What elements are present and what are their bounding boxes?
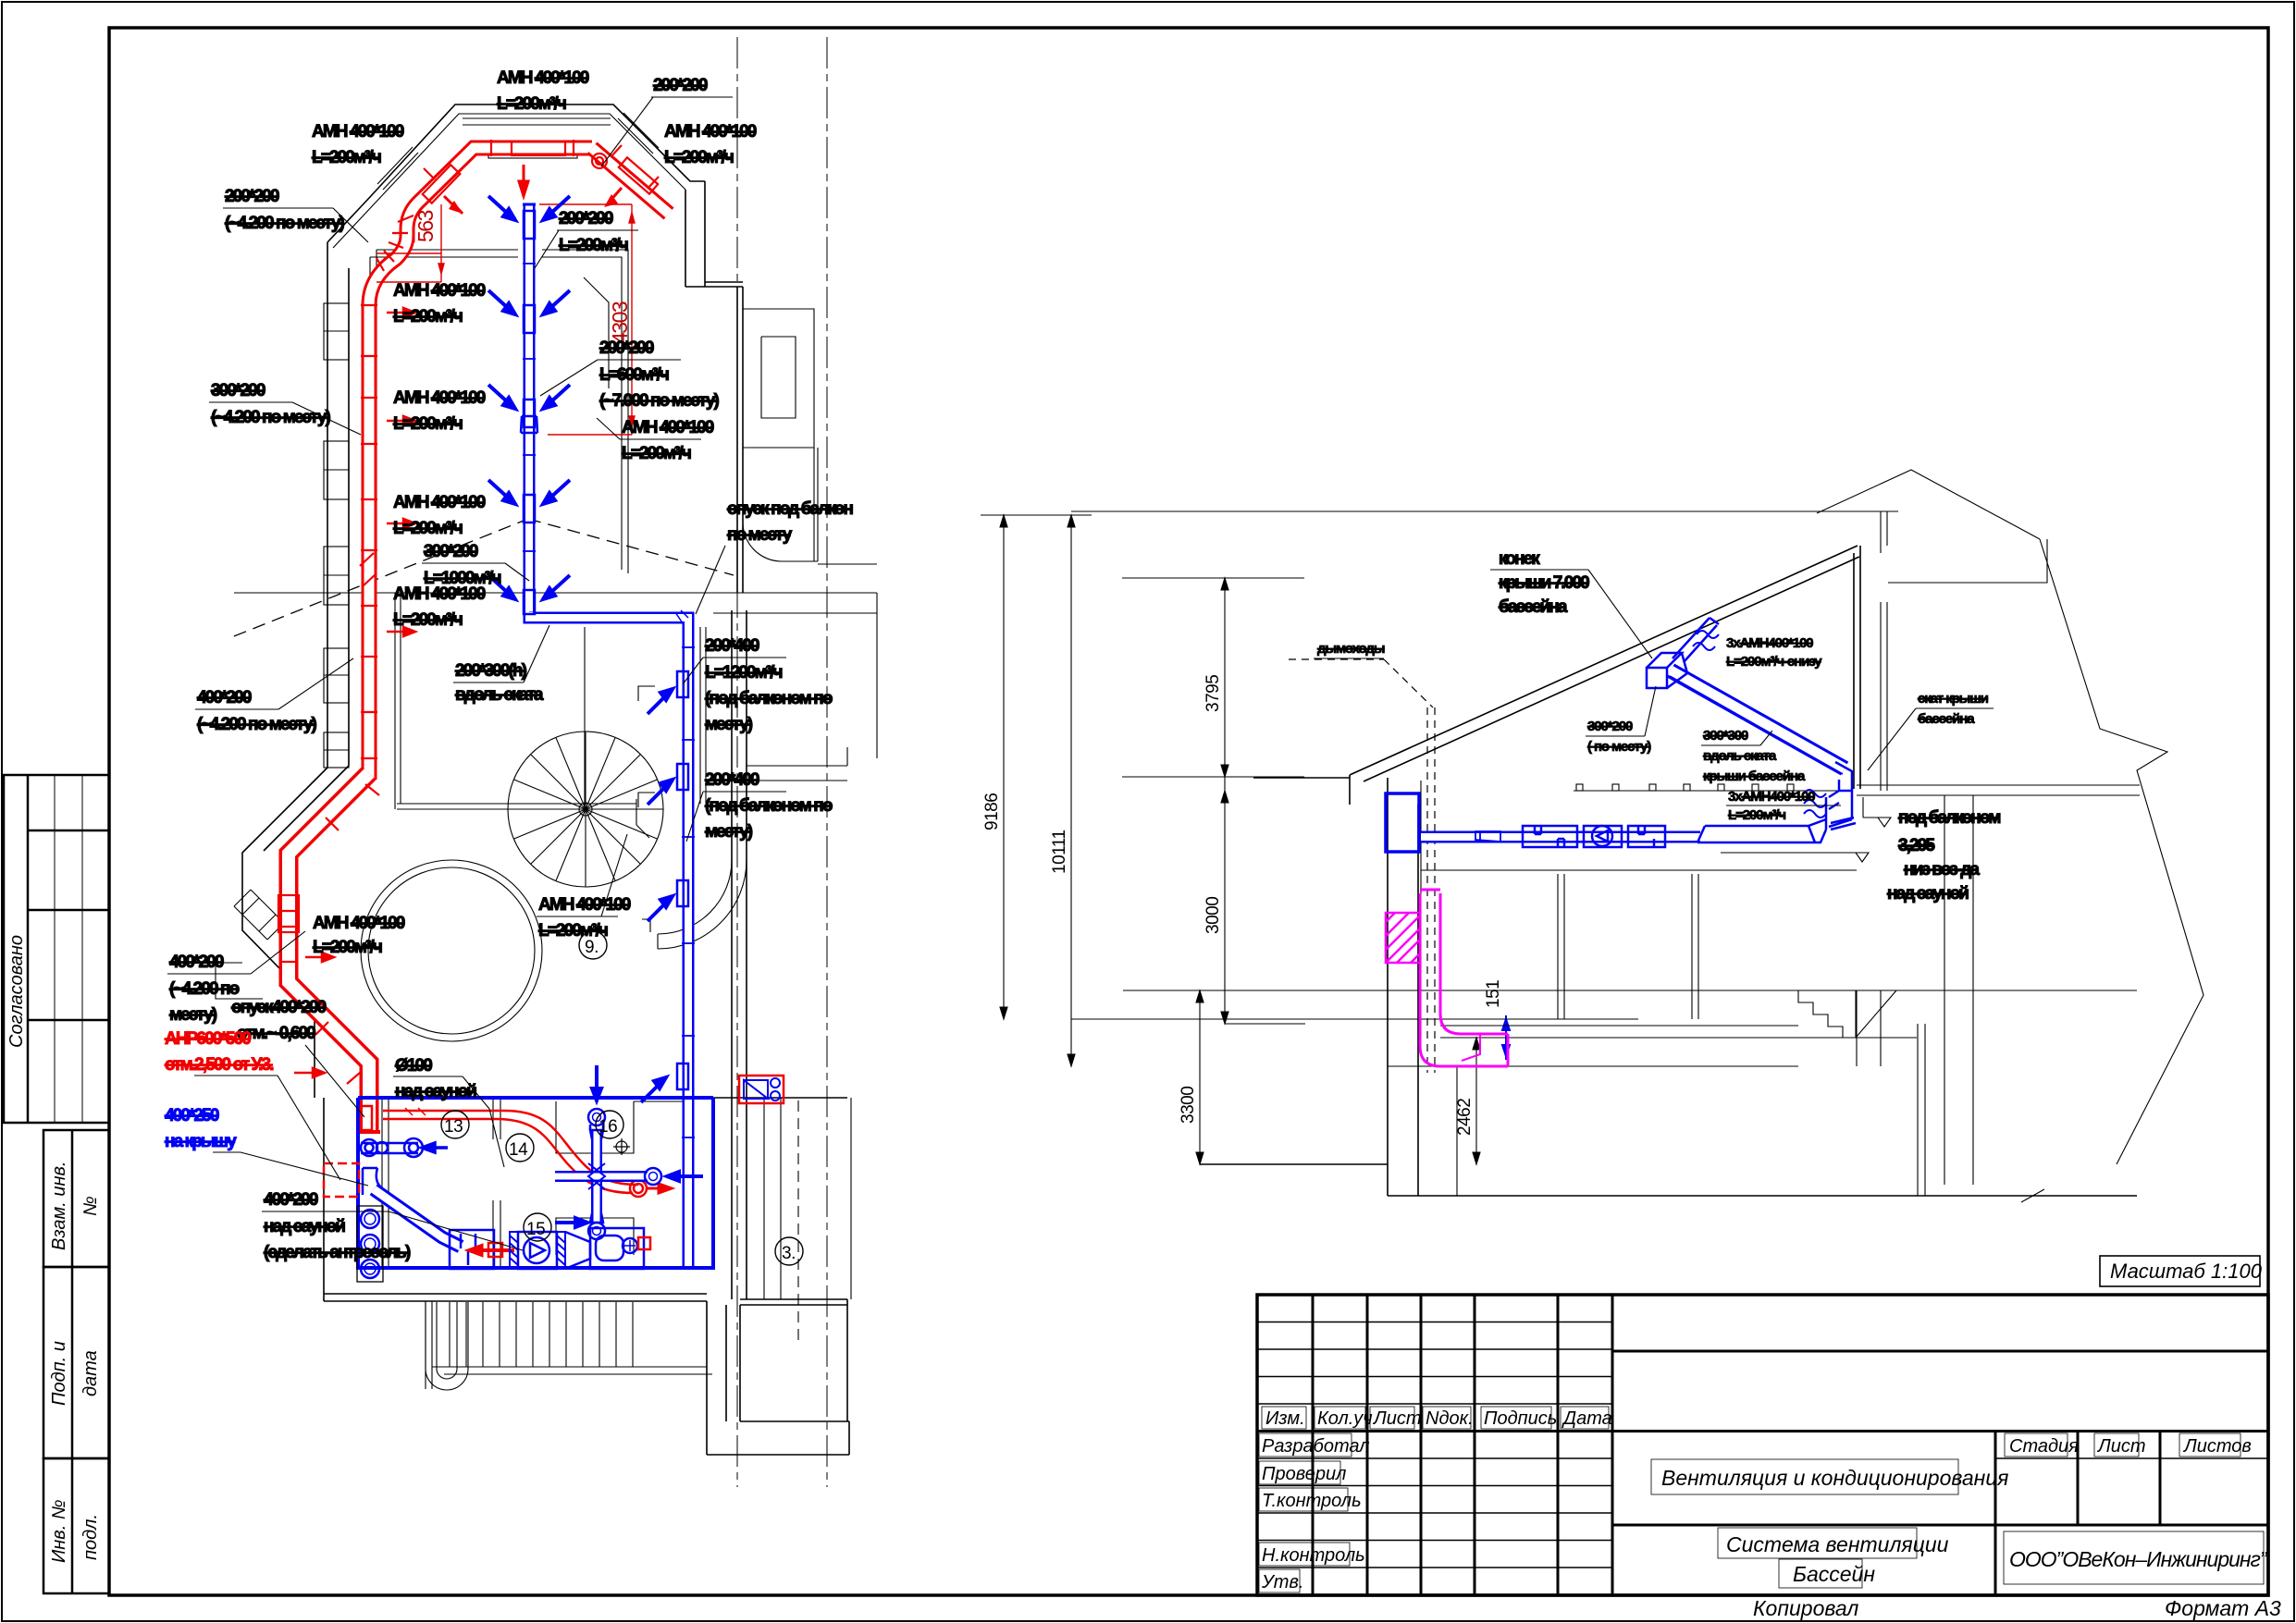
- svg-text:200*400: 200*400: [705, 636, 759, 656]
- svg-text:дата: дата: [80, 1350, 101, 1396]
- svg-text:под балконом: под балконом: [1898, 808, 2000, 828]
- svg-text:конек: конек: [1499, 549, 1540, 569]
- svg-text:Вентиляция и кондиционирования: Вентиляция и кондиционирования: [1661, 1466, 2008, 1490]
- svg-text:( по месту): ( по месту): [1587, 739, 1651, 755]
- svg-text:L=200м³/ч: L=200м³/ч: [312, 148, 381, 167]
- svg-text:(~4.200 по месту): (~4.200 по месту): [225, 214, 344, 233]
- svg-text:400*200: 400*200: [197, 688, 252, 707]
- svg-text:АМН 400*100: АМН 400*100: [393, 388, 486, 408]
- svg-text:АНР600*500: АНР600*500: [165, 1029, 251, 1049]
- svg-text:400*250: 400*250: [165, 1106, 219, 1125]
- svg-text:месту): месту): [705, 715, 753, 734]
- svg-text:ООО”ОВеКон–Инжиниринг”: ООО”ОВеКон–Инжиниринг”: [2009, 1547, 2268, 1571]
- svg-text:дымоходы: дымоходы: [1317, 641, 1385, 657]
- svg-text:Взам. инв.: Взам. инв.: [49, 1162, 69, 1250]
- svg-text:L=200м³/ч: L=200м³/ч: [393, 307, 463, 326]
- svg-text:L=200м³/ч: L=200м³/ч: [559, 236, 628, 255]
- svg-text:АМН 400*100: АМН 400*100: [313, 914, 405, 933]
- svg-text:L=600м³/ч: L=600м³/ч: [599, 365, 669, 385]
- svg-text:16: 16: [599, 1117, 617, 1137]
- svg-text:месту): месту): [705, 822, 753, 842]
- svg-text:9186: 9186: [982, 793, 1002, 830]
- svg-text:вдоль ската: вдоль ската: [1703, 748, 1777, 764]
- svg-text:Лист: Лист: [2096, 1436, 2146, 1457]
- svg-text:3,295: 3,295: [1898, 836, 1935, 855]
- svg-text:над сауной: над сауной: [1887, 884, 1969, 904]
- svg-text:L=200м³/ч: L=200м³/ч: [393, 414, 463, 434]
- svg-text:L=200м³/ч: L=200м³/ч: [664, 148, 734, 167]
- svg-text:Формат А3: Формат А3: [2165, 1596, 2281, 1620]
- svg-text:Nдок.: Nдок.: [1426, 1408, 1474, 1429]
- svg-text:15: 15: [526, 1220, 545, 1239]
- svg-text:крыши 7.000: крыши 7.000: [1499, 573, 1589, 593]
- svg-text:Ø100: Ø100: [395, 1056, 432, 1076]
- svg-text:Проверил: Проверил: [1262, 1464, 1346, 1484]
- svg-text:563: 563: [414, 210, 438, 242]
- svg-text:L=200м³/ч: L=200м³/ч: [497, 94, 566, 114]
- svg-text:3795: 3795: [1204, 675, 1223, 712]
- svg-text:200*200: 200*200: [653, 76, 708, 95]
- svg-text:L=200м³/ч: L=200м³/ч: [393, 610, 463, 630]
- svg-text:Лист: Лист: [1372, 1408, 1422, 1429]
- svg-text:400*200: 400*200: [264, 1190, 318, 1210]
- svg-text:Дата: Дата: [1562, 1408, 1612, 1429]
- svg-text:по месту: по месту: [727, 525, 793, 545]
- svg-text:Листов: Листов: [2182, 1436, 2252, 1457]
- svg-text:L=200м³/ч: L=200м³/ч: [393, 519, 463, 538]
- svg-text:АМН 400*100: АМН 400*100: [497, 68, 589, 88]
- svg-text:АМН 400*100: АМН 400*100: [393, 281, 486, 301]
- svg-text:L=200м³/ч: L=200м³/ч: [622, 444, 691, 463]
- svg-text:АМН 400*100: АМН 400*100: [393, 493, 486, 512]
- svg-text:над сауной: над сауной: [395, 1082, 476, 1101]
- svg-text:(~4.200 по месту): (~4.200 по месту): [197, 715, 316, 734]
- svg-text:Разработал: Разработал: [1262, 1436, 1370, 1457]
- svg-text:над сауной: над сауной: [264, 1217, 345, 1236]
- svg-text:3xАМН400*100: 3xАМН400*100: [1726, 635, 1813, 651]
- svg-text:Масштаб 1:100: Масштаб 1:100: [2110, 1260, 2263, 1283]
- svg-text:(под балконом по: (под балконом по: [705, 689, 833, 708]
- svg-text:9.: 9.: [585, 938, 599, 957]
- svg-text:13: 13: [444, 1117, 463, 1137]
- svg-text:300*200: 300*200: [424, 542, 478, 561]
- svg-text:300*200: 300*200: [1587, 719, 1633, 734]
- svg-text:на крышу: на крышу: [165, 1132, 237, 1151]
- svg-text:месту): месту): [169, 1005, 217, 1025]
- svg-text:бассейна: бассейна: [1918, 711, 1975, 727]
- svg-text:опуск400*200: опуск400*200: [231, 998, 327, 1017]
- svg-text:отм.2,500 от У.3.: отм.2,500 от У.3.: [165, 1055, 273, 1075]
- svg-text:Подп. и: Подп. и: [49, 1341, 69, 1406]
- svg-text:Т.контроль: Т.контроль: [1262, 1491, 1362, 1511]
- svg-text:бассейна: бассейна: [1499, 597, 1568, 617]
- svg-text:Стадия: Стадия: [2009, 1436, 2079, 1457]
- svg-text:L=200м³/ч-снизу: L=200м³/ч-снизу: [1726, 654, 1822, 670]
- svg-text:10111: 10111: [1050, 830, 1069, 874]
- svg-text:вдоль ската: вдоль ската: [455, 685, 544, 705]
- svg-text:Согласовано: Согласовано: [6, 935, 27, 1048]
- svg-text:АМН 400*100: АМН 400*100: [312, 122, 404, 141]
- svg-text:300*200: 300*200: [211, 381, 265, 400]
- svg-text:3.: 3.: [782, 1244, 796, 1263]
- svg-text:Копировал: Копировал: [1753, 1596, 1858, 1620]
- svg-text:(~7.000 по месту): (~7.000 по месту): [599, 391, 719, 411]
- svg-text:2462: 2462: [1455, 1099, 1475, 1136]
- svg-text:Система вентиляции: Система вентиляции: [1726, 1532, 1949, 1556]
- svg-text:151: 151: [1484, 980, 1503, 1008]
- svg-text:L=1200м³/ч: L=1200м³/ч: [705, 663, 783, 682]
- svg-text:L=200м³/ч: L=200м³/ч: [313, 938, 382, 957]
- svg-text:низ воз-да: низ воз-да: [1904, 860, 1980, 879]
- svg-text:3xАМН400*100: 3xАМН400*100: [1728, 789, 1815, 805]
- svg-text:Бассейн: Бассейн: [1793, 1562, 1875, 1586]
- svg-text:400*200: 400*200: [169, 953, 224, 972]
- svg-text:300*300: 300*300: [1703, 728, 1748, 744]
- svg-text:Утв.: Утв.: [1261, 1572, 1303, 1592]
- svg-text:3000: 3000: [1204, 897, 1223, 934]
- svg-text:L=200м³/ч: L=200м³/ч: [1728, 807, 1785, 823]
- svg-text:подл.: подл.: [80, 1514, 101, 1560]
- svg-text:Подпись: Подпись: [1484, 1408, 1557, 1429]
- svg-text:опуск под балкон: опуск под балкон: [727, 499, 853, 519]
- svg-text:Н.контроль: Н.контроль: [1262, 1545, 1365, 1566]
- svg-text:№: №: [80, 1196, 101, 1216]
- svg-text:крыши бассейна: крыши бассейна: [1703, 768, 1806, 784]
- svg-text:200*400: 200*400: [705, 770, 759, 790]
- svg-text:(~4.200 по: (~4.200 по: [169, 979, 240, 999]
- svg-text:200*300(h): 200*300(h): [455, 661, 527, 681]
- svg-text:200*200: 200*200: [559, 209, 613, 228]
- svg-text:АМН 400*100: АМН 400*100: [393, 584, 486, 604]
- svg-text:Изм.: Изм.: [1265, 1408, 1305, 1429]
- svg-text:(~4.200 по месту): (~4.200 по месту): [211, 408, 330, 427]
- svg-text:200*200: 200*200: [599, 338, 654, 358]
- svg-text:АМН 400*100: АМН 400*100: [664, 122, 757, 141]
- svg-text:14: 14: [509, 1140, 528, 1160]
- svg-text:АМН 400*100: АМН 400*100: [622, 418, 714, 437]
- svg-text:3300: 3300: [1179, 1087, 1198, 1124]
- svg-text:Кол.уч: Кол.уч: [1317, 1408, 1373, 1429]
- svg-text:Инв. №: Инв. №: [49, 1499, 69, 1563]
- svg-text:200*200: 200*200: [225, 187, 279, 206]
- svg-text:(под балконом по: (под балконом по: [705, 796, 833, 816]
- svg-text:скат крыши: скат крыши: [1918, 691, 1989, 707]
- svg-text:АМН 400*100: АМН 400*100: [538, 895, 631, 915]
- svg-text:(сделать антресоль): (сделать антресоль): [264, 1243, 411, 1262]
